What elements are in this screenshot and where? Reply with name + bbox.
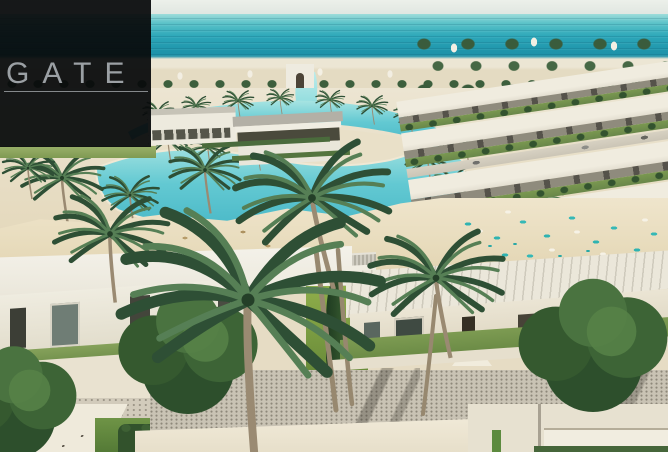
- arch-gate-building: [286, 64, 314, 88]
- bottom-right-roof: [468, 404, 668, 452]
- peninsula-pavilion-a: [147, 106, 236, 145]
- window: [182, 289, 208, 333]
- colonnade-shadow: [152, 128, 230, 141]
- resort-aerial-photo: GATE: [0, 0, 668, 452]
- window: [10, 308, 26, 349]
- window: [218, 289, 230, 326]
- logo-underline: [4, 91, 148, 92]
- grass-sliver: [492, 430, 501, 452]
- logo-box: GATE: [0, 0, 151, 147]
- roof-seam: [538, 404, 541, 452]
- hedge: [534, 446, 668, 452]
- window: [50, 302, 80, 348]
- window: [130, 295, 150, 336]
- lawn-strip: [0, 146, 156, 158]
- arch-opening: [296, 73, 304, 88]
- logo-text: GATE: [6, 56, 151, 92]
- garden-wall: [0, 350, 20, 452]
